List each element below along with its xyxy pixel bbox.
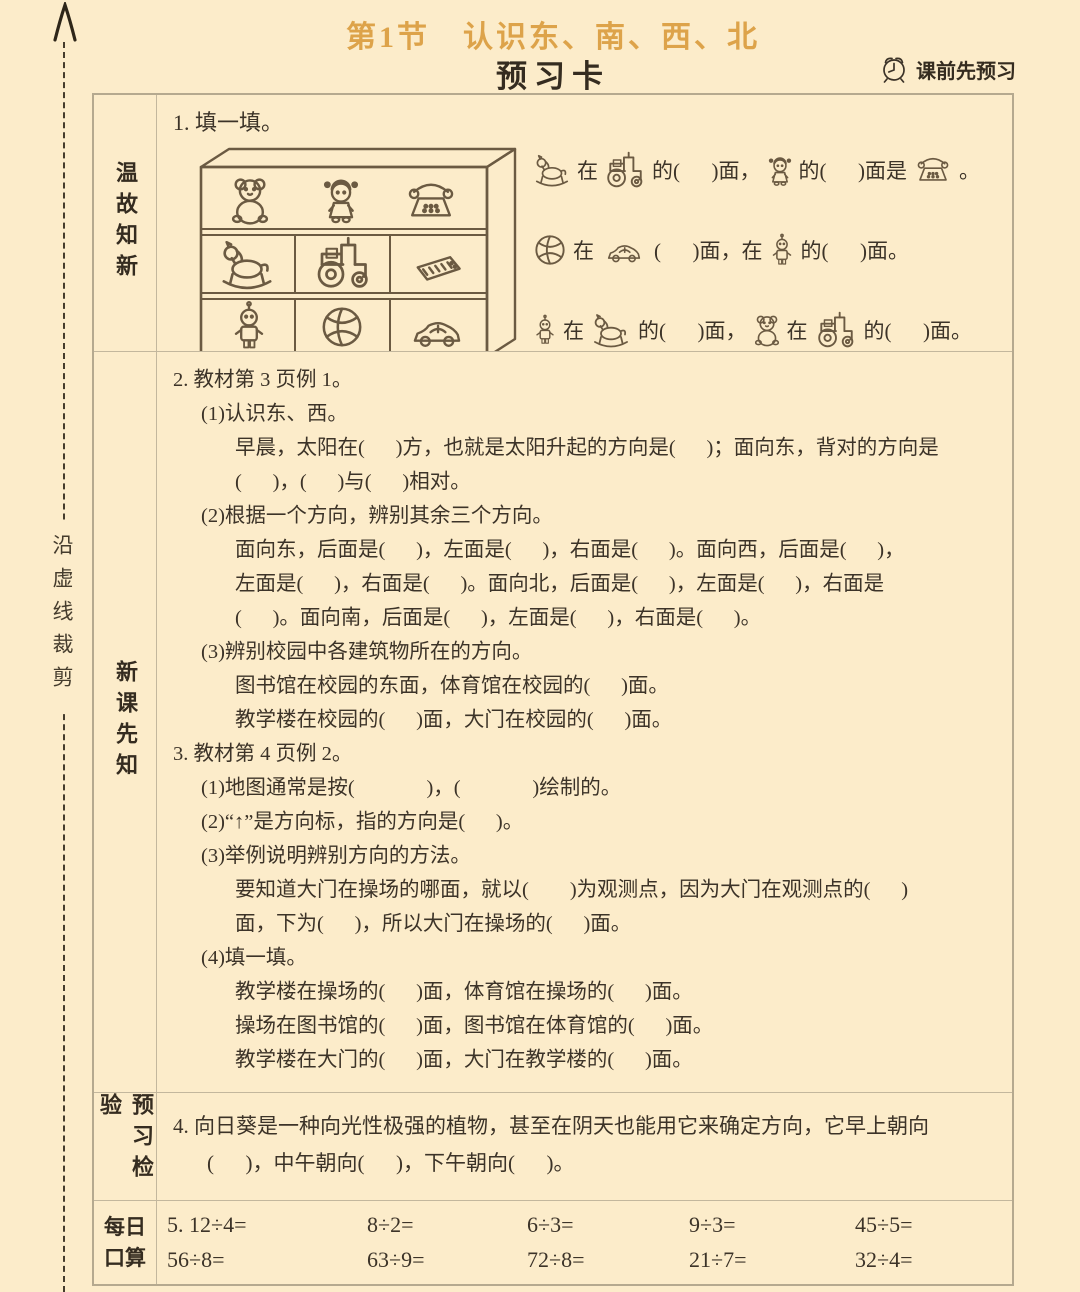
study-line: 2. 教材第 3 页例 1。 — [173, 363, 1000, 397]
study-line: 面向东，后面是( )，左面是( )，右面是( )。面向西，后面是( )， — [173, 533, 1000, 567]
fill-text: ( )面，在 — [654, 235, 763, 265]
fill-line-3: 在 的( )面， 在 的( )面。 — [527, 309, 1000, 351]
page-title: 预习卡 — [92, 51, 1014, 96]
robot-icon — [529, 309, 561, 351]
row-label-text: 新课先知 — [109, 660, 141, 784]
fill-text: 在 — [563, 315, 584, 345]
car-icon — [596, 232, 652, 268]
oral-math-row: 5. 12÷4=8÷2=6÷3=9÷3=45÷5= — [167, 1212, 1012, 1238]
fill-text: 的( )面， — [638, 315, 747, 345]
shelf-item-telephone — [410, 185, 452, 216]
oral-content: 5. 12÷4=8÷2=6÷3=9÷3=45÷5= 56÷8=63÷9=72÷8… — [157, 1201, 1012, 1284]
fill-text: 的( )面， — [652, 155, 761, 185]
math-problem: 21÷7= — [689, 1247, 855, 1273]
study-line: (2)“↑”是方向标，指的方向是( )。 — [173, 805, 1000, 839]
study-line: 要知道大门在操场的哪面，就以( )为观测点，因为大门在观测点的( ) — [173, 873, 1000, 907]
math-problem: 45÷5= — [855, 1212, 1012, 1238]
fill-text: 的( )面。 — [864, 315, 973, 345]
study-line: 面，下为( )，所以大门在操场的( )面。 — [173, 907, 1000, 941]
question-1-title: 1. 填一填。 — [173, 105, 1000, 137]
study-line: 左面是( )，右面是( )。面向北，后面是( )，左面是( )，右面是 — [173, 567, 1000, 601]
study-line: 教学楼在校园的( )面，大门在校园的( )面。 — [173, 703, 1000, 737]
row-label-check: 预习检验 — [94, 1093, 157, 1201]
study-line: 图书馆在校园的东面，体育馆在校园的( )面。 — [173, 669, 1000, 703]
math-problem: 32÷4= — [855, 1247, 1012, 1273]
math-problem: 63÷9= — [367, 1247, 527, 1273]
fill-in-lines: 在 的( )面， 的( )面是 。 在 ( )面，在 — [527, 141, 1000, 352]
study-line: 操场在图书馆的( )面，图书馆在体育馆的( )面。 — [173, 1009, 1000, 1043]
fill-text: 在 — [577, 155, 598, 185]
shelf-item-teddy-bear — [233, 180, 267, 224]
fill-line-2: 在 ( )面，在 的( )面。 — [527, 228, 1000, 272]
fill-text: 在 — [573, 235, 594, 265]
telephone-icon — [909, 152, 957, 188]
ball-icon — [529, 229, 571, 271]
math-problem: 9÷3= — [689, 1212, 855, 1238]
shelf-item-doll — [324, 180, 358, 223]
row-label-text: 温故知新 — [109, 161, 141, 285]
math-problem: 72÷8= — [527, 1247, 689, 1273]
doll-icon — [763, 150, 797, 190]
teddy-bear-icon — [749, 311, 785, 349]
shelf-item-rocking-horse — [224, 242, 270, 288]
rocking-horse-icon — [586, 310, 636, 350]
tractor-icon — [810, 309, 862, 351]
oral-label-line1: 每日 — [104, 1212, 146, 1243]
study-content: 2. 教材第 3 页例 1。 (1)认识东、西。 早晨，太阳在( )方，也就是太… — [157, 352, 1012, 1093]
worksheet-table: 温故知新 1. 填一填。 — [92, 93, 1014, 1286]
fill-text: 在 — [787, 315, 808, 345]
study-line: (4)填一填。 — [173, 941, 1000, 975]
study-line: 3. 教材第 4 页例 2。 — [173, 737, 1000, 771]
robot-icon — [765, 228, 799, 272]
study-line: ( )，( )与( )相对。 — [173, 465, 1000, 499]
section-title: 第1节 认识东、南、西、北 — [92, 12, 1014, 56]
rocking-horse-icon — [529, 151, 575, 189]
row-label-study: 新课先知 — [94, 352, 157, 1093]
math-problem: 6÷3= — [527, 1212, 689, 1238]
study-line: (3)辨别校园中各建筑物所在的方向。 — [173, 635, 1000, 669]
study-line: (2)根据一个方向，辨别其余三个方向。 — [173, 499, 1000, 533]
shelf-item-tractor — [319, 238, 366, 286]
shelf-illustration — [187, 141, 517, 352]
study-line: (3)举例说明辨别方向的方法。 — [173, 839, 1000, 873]
check-content: 4. 向日葵是一种向光性极强的植物，甚至在阴天也能用它来确定方向，它早上朝向 (… — [157, 1093, 1012, 1201]
study-line: ( )。面向南，后面是( )，左面是( )，右面是( )。 — [173, 601, 1000, 635]
check-line: 4. 向日葵是一种向光性极强的植物，甚至在阴天也能用它来确定方向，它早上朝向 — [173, 1108, 1000, 1145]
study-line: (1)认识东、西。 — [173, 397, 1000, 431]
shelf-item-ball — [324, 309, 360, 345]
oral-label-line2: 口算 — [104, 1243, 146, 1274]
fill-text: 。 — [959, 155, 980, 185]
row-label-oral: 每日 口算 — [94, 1201, 157, 1284]
reminder: 课前先预习 — [879, 54, 1016, 84]
study-line: 早晨，太阳在( )方，也就是太阳升起的方向是( )；面向东，背对的方向是 — [173, 431, 1000, 465]
cut-label: 沿虚线裁剪 — [51, 520, 77, 713]
shelf-item-car — [415, 323, 459, 346]
study-line: 教学楼在大门的( )面，大门在教学楼的( )面。 — [173, 1043, 1000, 1077]
fill-text: 的( )面。 — [801, 235, 910, 265]
tractor-icon — [600, 149, 650, 191]
math-problem: 56÷8= — [167, 1247, 367, 1273]
study-line: 教学楼在操场的( )面，体育馆在操场的( )面。 — [173, 975, 1000, 1009]
row-label-text: 每日 口算 — [104, 1212, 146, 1274]
row-label-text: 预习检验 — [93, 1093, 157, 1200]
worksheet-page: 沿虚线裁剪 第1节 认识东、南、西、北 预习卡 课前先预习 温故知新 1. 填一… — [0, 0, 1080, 1292]
study-line: (1)地图通常是按( )，( )绘制的。 — [173, 771, 1000, 805]
shelf-item-keyboard — [418, 257, 460, 279]
reminder-label: 课前先预习 — [916, 55, 1016, 84]
fill-line-1: 在 的( )面， 的( )面是 。 — [527, 149, 1000, 191]
check-line: ( )，中午朝向( )，下午朝向( )。 — [173, 1145, 1000, 1182]
row-label-review: 温故知新 — [94, 95, 157, 352]
review-content: 1. 填一填。 — [157, 95, 1012, 352]
math-problem: 5. 12÷4= — [167, 1212, 367, 1238]
oral-math-row: 56÷8=63÷9=72÷8=21÷7=32÷4= — [167, 1247, 1012, 1273]
shelf-item-robot — [236, 302, 262, 347]
cut-arrow-icon — [52, 2, 78, 44]
math-problem: 8÷2= — [367, 1212, 527, 1238]
fill-text: 的( )面是 — [799, 155, 908, 185]
alarm-clock-icon — [879, 54, 909, 84]
